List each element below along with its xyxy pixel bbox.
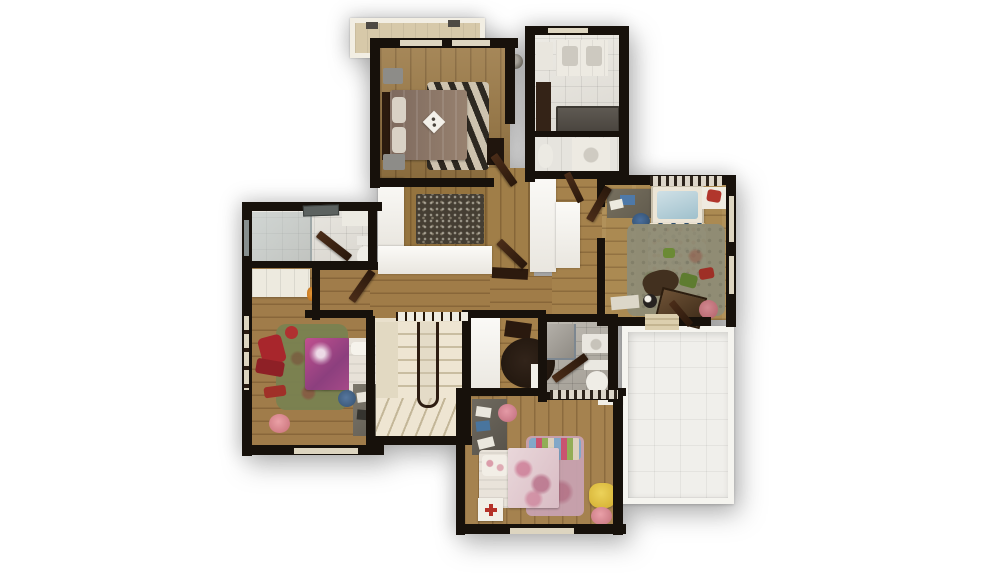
wall-cbath-top: [538, 314, 614, 322]
white-wall-corridor-1: [530, 174, 556, 272]
ensuite-sink-2: [586, 46, 602, 66]
master-pillow-2: [392, 127, 406, 153]
terrace-floor: [628, 332, 728, 498]
stairs-side-strip: [376, 322, 398, 398]
bottom-bed-stool-pink: [591, 507, 612, 525]
leftbath-skylight: [303, 204, 339, 216]
wall-bath-divider: [531, 131, 623, 137]
white-wall-nook-left: [378, 178, 404, 248]
white-wall-nook-bottom: [378, 246, 492, 274]
ensuite-sink-1: [562, 46, 578, 66]
wall-ensuite-right: [619, 26, 629, 184]
ensuite-partition: [536, 82, 551, 134]
ensuite-bathtub: [556, 106, 620, 134]
wall-master-right: [505, 38, 515, 124]
ensuite-window: [548, 28, 588, 33]
left-bed-toy-red-4: [285, 326, 298, 339]
stairs-balustrade: [396, 312, 468, 321]
wall-leftbath-right: [368, 202, 377, 268]
stairs-railing: [417, 322, 439, 408]
left-bed-wardrobe: [252, 269, 310, 297]
left-bed-chair: [338, 390, 356, 407]
bottom-bed-nightstand: [478, 498, 503, 521]
balcony-mark-2: [448, 20, 460, 27]
wall-master-left: [370, 38, 380, 188]
wall-bottombed-top-a: [456, 388, 544, 396]
kids-window-2: [729, 256, 734, 294]
wall-leftbed-right: [366, 316, 375, 452]
wall-master-bottom: [370, 178, 494, 187]
center-bath-toilet-tank: [584, 360, 610, 370]
master-bench-2: [383, 154, 405, 170]
wall-bottombed-right: [613, 388, 623, 535]
center-bath-shower: [546, 324, 576, 360]
kids-window-1: [729, 196, 734, 242]
kids-toy-red: [706, 189, 722, 203]
left-bed-blanket: [305, 338, 350, 390]
floor-plan-screenshot: [0, 0, 1000, 588]
small-bath-sink-unit: [572, 138, 610, 172]
ensuite-shelf: [536, 42, 553, 70]
landing-bench: [504, 320, 532, 339]
left-bath-cabinet: [342, 211, 368, 226]
floor-plan: [0, 0, 1000, 588]
bottom-bed-desk-item-2: [476, 420, 491, 431]
master-bench-1: [383, 68, 403, 84]
master-pillow-1: [392, 97, 406, 123]
master-window-1: [400, 40, 442, 46]
bottom-bed-pillow: [482, 455, 508, 476]
wall-kids-left-lower: [597, 238, 605, 326]
wall-landing-top: [462, 310, 546, 318]
terrace-steps: [645, 314, 679, 330]
small-bath-toilet: [538, 144, 553, 168]
master-window-2: [452, 40, 490, 46]
kids-items-white: [610, 295, 639, 310]
bottom-bed-blanket: [508, 448, 559, 508]
bottom-bed-desk-item-1: [475, 406, 491, 418]
dressing-rug: [416, 194, 484, 244]
bottom-bed-chair: [498, 404, 517, 422]
balcony-mark-1: [366, 22, 378, 29]
left-bath-shower: [252, 212, 312, 262]
bottom-bed-radiator: [550, 390, 618, 399]
kids-ball: [643, 294, 657, 308]
kids-toy-green-2: [663, 248, 675, 258]
white-wall-corridor-2: [556, 202, 580, 268]
center-bath-sink: [582, 334, 610, 353]
wall-master-top: [370, 38, 518, 48]
kids-radiator: [650, 176, 722, 186]
wall-bottombed-left: [456, 388, 465, 535]
leftbed-window-left: [244, 316, 249, 390]
leftbed-window-bottom: [294, 448, 358, 454]
bottombed-window-bottom: [510, 528, 574, 534]
left-bed-stool: [269, 414, 290, 433]
white-wall-landing: [470, 316, 500, 396]
leftbath-window: [244, 220, 249, 256]
hall-bench: [492, 267, 529, 280]
wall-ensuite-left: [525, 26, 535, 182]
wall-leftbed-top: [305, 310, 373, 318]
kids-bed-pillow: [657, 191, 698, 219]
bottom-bed-pouf-yellow: [589, 483, 616, 508]
